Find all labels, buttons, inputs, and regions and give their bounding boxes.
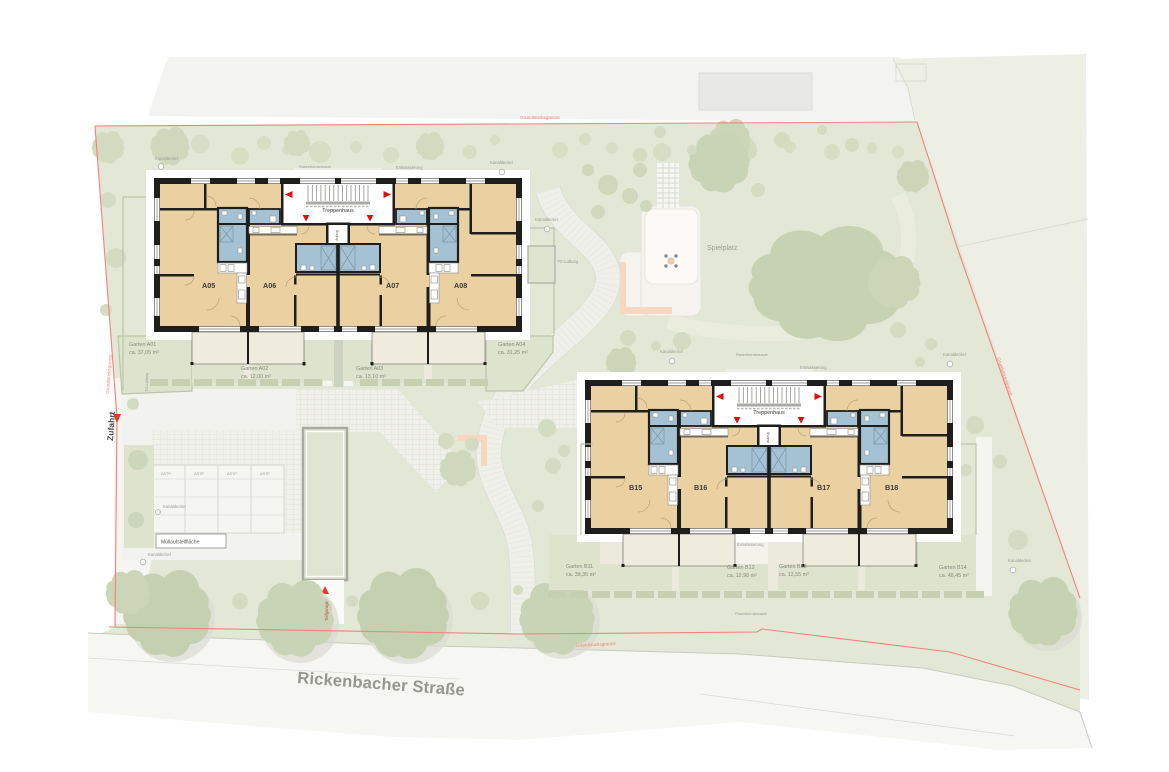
svg-text:Kanaldeckel: Kanaldeckel — [943, 352, 966, 357]
svg-text:Garten A03: Garten A03 — [356, 366, 383, 372]
svg-text:ca. 31,25 m²: ca. 31,25 m² — [498, 350, 528, 356]
svg-text:Müllaufstellfläche: Müllaufstellfläche — [161, 540, 200, 546]
svg-text:ca. 39,35 m²: ca. 39,35 m² — [566, 572, 596, 578]
svg-text:B16: B16 — [694, 483, 707, 492]
svg-text:Garten B13: Garten B13 — [779, 564, 807, 570]
svg-text:Rasenbordansaule: Rasenbordansaule — [735, 612, 767, 616]
svg-text:Kanaldeckel: Kanaldeckel — [660, 349, 683, 354]
svg-text:Kanaldeckel: Kanaldeckel — [163, 504, 186, 509]
svg-text:A07: A07 — [386, 281, 399, 290]
svg-text:A05: A05 — [202, 281, 215, 290]
svg-text:Garten A04: Garten A04 — [498, 342, 525, 348]
svg-text:TG-Lüftung: TG-Lüftung — [557, 259, 579, 264]
svg-text:A06: A06 — [263, 281, 276, 290]
svg-text:Zufahrt: Zufahrt — [105, 411, 117, 441]
svg-text:Garten A02: Garten A02 — [241, 366, 268, 372]
svg-text:ASTP: ASTP — [194, 472, 204, 476]
svg-text:Entwässerung: Entwässerung — [737, 542, 764, 547]
svg-text:B18: B18 — [885, 483, 898, 492]
svg-text:ASTP: ASTP — [161, 472, 171, 476]
svg-text:Rasenbordansaule: Rasenbordansaule — [299, 165, 331, 169]
svg-text:ca. 12,90 m²: ca. 12,90 m² — [727, 573, 757, 579]
svg-text:ca. 13,10 m²: ca. 13,10 m² — [356, 374, 386, 380]
svg-text:ca. 48,45 m²: ca. 48,45 m² — [939, 573, 969, 579]
svg-text:Grundstücksgrenze: Grundstücksgrenze — [520, 115, 560, 120]
svg-text:Garten B14: Garten B14 — [939, 565, 967, 571]
svg-text:ca. 12,00 m²: ca. 12,00 m² — [241, 374, 271, 380]
svg-text:Garten A01: Garten A01 — [129, 342, 156, 348]
svg-text:Rasenbordansaule: Rasenbordansaule — [736, 353, 768, 357]
svg-text:Spielplatz: Spielplatz — [707, 245, 738, 252]
svg-text:B17: B17 — [817, 483, 830, 492]
svg-text:TG-Lüftung: TG-Lüftung — [145, 373, 149, 392]
svg-text:ca. 12,55 m²: ca. 12,55 m² — [779, 572, 809, 578]
svg-text:Kanaldeckel: Kanaldeckel — [155, 156, 178, 161]
svg-text:Kanaldeckel: Kanaldeckel — [148, 552, 171, 557]
svg-text:Kanaldeckel: Kanaldeckel — [535, 217, 558, 222]
svg-text:Garten B12: Garten B12 — [727, 565, 755, 571]
svg-text:Entwässerung: Entwässerung — [800, 365, 827, 370]
svg-text:ASTP: ASTP — [260, 472, 270, 476]
svg-text:A08: A08 — [454, 281, 467, 290]
svg-text:Garten B11: Garten B11 — [566, 564, 593, 570]
svg-text:ASTP: ASTP — [227, 472, 237, 476]
svg-text:Tiefgarage: Tiefgarage — [324, 600, 329, 621]
svg-text:ca. 37,05 m²: ca. 37,05 m² — [129, 350, 159, 356]
svg-text:B15: B15 — [629, 483, 642, 492]
svg-text:Kanaldeckel: Kanaldeckel — [1008, 558, 1031, 563]
svg-text:Kanaldeckel: Kanaldeckel — [490, 160, 513, 165]
svg-text:Entwässerung: Entwässerung — [396, 165, 423, 170]
